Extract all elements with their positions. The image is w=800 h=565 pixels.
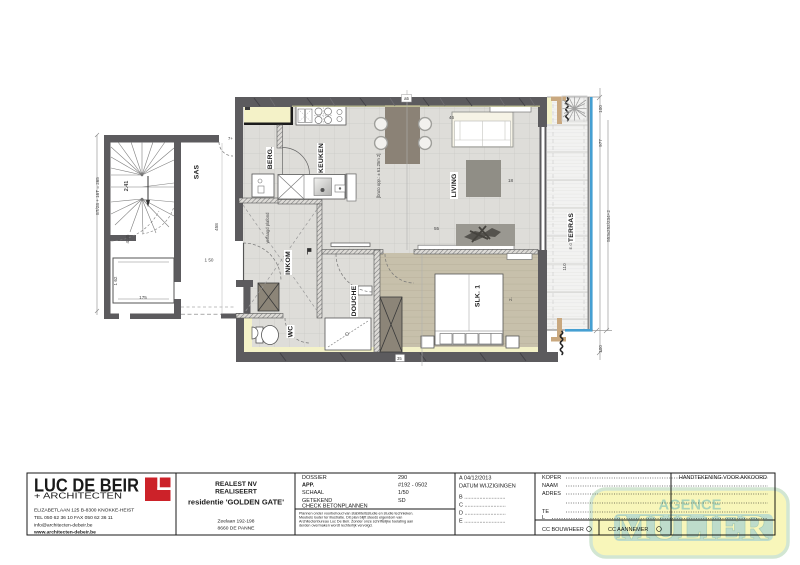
svg-text:[bruto opp.: ± 61.25m 2]: [bruto opp.: ± 61.25m 2] [376,154,381,198]
svg-text:TEL 050 62 36 10 FAX 050 62: TEL 050 62 36 10 FAX 050 62 36 11 [34,515,113,521]
svg-text:LIVING: LIVING [451,174,458,198]
svg-text:1 50: 1 50 [205,258,214,263]
svg-text:18: 18 [508,178,514,183]
svg-text:4.35: 4.35 [125,234,130,243]
svg-text:B ...........................: B ........................... [459,495,506,501]
svg-text:100: 100 [598,105,603,113]
svg-text:WC: WC [288,326,295,338]
svg-text:46: 46 [449,115,455,120]
svg-text:CHECK BETONPLANNEN: CHECK BETONPLANNEN [302,503,368,509]
svg-text:INKOM: INKOM [285,251,292,275]
svg-text:2.41: 2.41 [124,181,130,192]
svg-text:1/50: 1/50 [398,490,409,496]
svg-text:2.: 2. [508,297,513,301]
svg-text:ELIZABETLAAN 125 B-8300 KNOKK: ELIZABETLAAN 125 B-8300 KNOKKE-HEIST [34,508,134,514]
svg-text:C ...........................: C ........................... [459,503,506,509]
svg-text:CC BOUWHEER: CC BOUWHEER [542,527,584,533]
svg-text:SAS: SAS [194,164,201,179]
svg-text:DOSSIER: DOSSIER [302,475,327,481]
svg-text:SCHAAL: SCHAAL [302,490,324,496]
svg-text:REALISEERT: REALISEERT [215,489,257,496]
svg-text:8T/28 + 16T = 265: 8T/28 + 16T = 265 [95,177,100,215]
svg-text:derden overmaken wordt rechter: derden overmaken wordt rechterlijk vervo… [299,524,373,528]
svg-text:7+: 7+ [228,136,233,141]
svg-text:Zeelaan 192-198: Zeelaan 192-198 [218,519,255,525]
svg-text:175: 175 [139,295,147,300]
svg-text:BERG.: BERG. [267,147,274,170]
svg-text:REALEST NV: REALEST NV [215,481,257,488]
svg-text:KEUKEN: KEUKEN [318,143,325,173]
svg-text:290: 290 [398,475,407,481]
svg-text:100: 100 [598,345,603,353]
svg-text:HANDTEKENING VOOR AKKOORD: HANDTEKENING VOOR AKKOORD [679,475,767,481]
svg-text:977: 977 [598,139,603,147]
svg-text:1 62: 1 62 [113,276,118,285]
svg-text:SD: SD [398,498,406,504]
svg-text:verlaagd plafond: verlaagd plafond [265,212,270,244]
svg-text:553x252/234+2: 553x252/234+2 [606,210,611,242]
svg-text:L: L [542,515,545,521]
svg-text:+ ARCHITECTEN: + ARCHITECTEN [34,492,122,501]
svg-text:A 04/12/2013: A 04/12/2013 [459,476,491,482]
svg-text:MULIER: MULIER [616,507,769,547]
svg-text:D ...........................: D ........................... [459,511,506,517]
svg-text:458: 458 [214,223,219,231]
svg-text:NAAM: NAAM [542,483,558,489]
svg-text:SLK. 1: SLK. 1 [475,285,482,307]
svg-text:KOPER: KOPER [542,475,561,481]
svg-text:TERRAS: TERRAS [568,213,575,242]
svg-text:#192 - 0502: #192 - 0502 [398,483,427,489]
svg-text:E ...........................: E ........................... [459,519,506,525]
svg-text:residentie 'GOLDEN GATE': residentie 'GOLDEN GATE' [188,500,284,507]
svg-text:110: 110 [562,263,567,271]
svg-text:55: 55 [434,226,440,231]
svg-text:a5: a5 [404,96,409,101]
svg-text:APP.: APP. [302,483,315,489]
svg-text:E.G: E.G [569,243,573,250]
svg-text:35: 35 [397,356,402,361]
svg-text:info@architecten-debeir.be: info@architecten-debeir.be [34,522,93,528]
svg-text:www.architecten-debeir.be: www.architecten-debeir.be [33,529,96,535]
svg-text:ADRES: ADRES [542,491,561,497]
svg-text:DATUM WIJZIGINGEN: DATUM WIJZIGINGEN [459,484,516,490]
svg-text:DOUCHE: DOUCHE [351,285,358,316]
svg-text:8660 DE PANNE: 8660 DE PANNE [218,526,256,532]
